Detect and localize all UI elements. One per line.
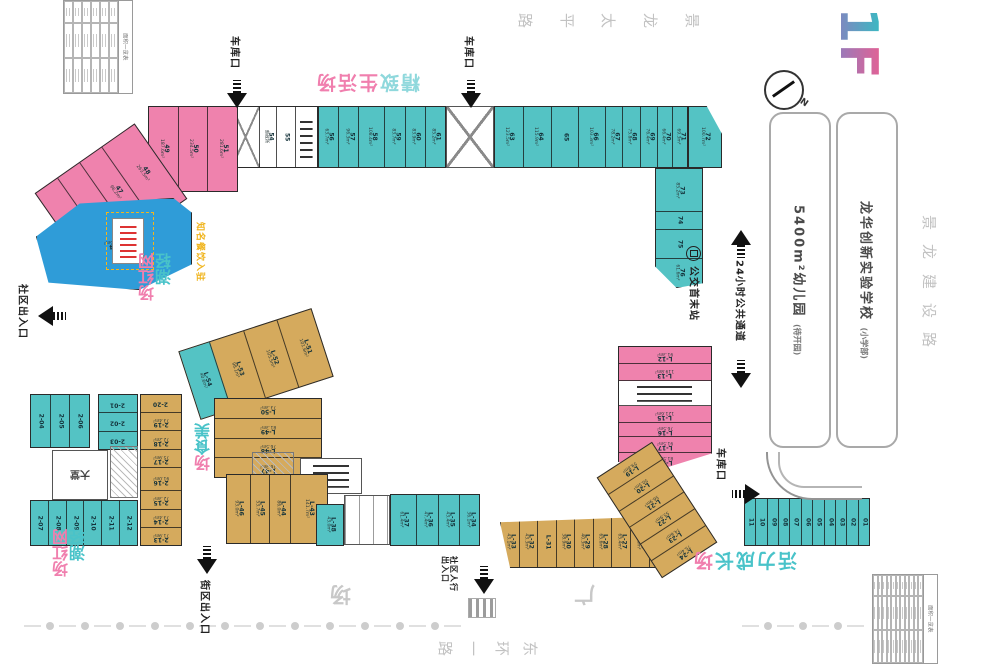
unit-label: 74 bbox=[676, 216, 682, 224]
unit-60[interactable]: 6083.9m² bbox=[406, 107, 426, 167]
unit-67[interactable]: 6778.2m² bbox=[606, 107, 623, 167]
unit-label: 4796.2m² bbox=[108, 182, 126, 202]
floor-plan-1f: 1F N 面积一览表 面积一览表 路平太龙景 景龙建设路 路一环东 广 场 54… bbox=[0, 0, 1000, 666]
road-char: 路 bbox=[435, 641, 456, 656]
unit-L-49[interactable]: L-4981.3m² bbox=[215, 419, 321, 439]
unit-label: L-5073.3m² bbox=[260, 403, 276, 414]
unit-57[interactable]: 5796.3m² bbox=[339, 107, 359, 167]
unit-label: 2-1775.9m² bbox=[153, 453, 169, 464]
cluster-unit-72: 72100.7m² bbox=[688, 106, 722, 168]
cluster-pink-L12-L18: L-1291.3m²L-13119.8m²L-15121.6m²L-1676.5… bbox=[618, 346, 712, 468]
school-block: 龙华创新实验学校 (小学部) bbox=[836, 112, 898, 448]
zone-label-segment: 活力成长 bbox=[713, 549, 797, 571]
crosswalk bbox=[468, 598, 496, 618]
unit-label: L-52105.5m² bbox=[263, 348, 279, 370]
unit-05[interactable]: 05 bbox=[813, 499, 824, 545]
unit-01[interactable]: 01 bbox=[859, 499, 869, 545]
road-dot bbox=[221, 622, 229, 630]
unit-label: 49187.6m² bbox=[158, 139, 169, 158]
unit-label: L-3843.0m² bbox=[324, 517, 335, 533]
bus-terminus-label: 公交首末站 bbox=[687, 266, 698, 321]
unit-label: L-1291.3m² bbox=[657, 350, 673, 361]
table-cell bbox=[73, 23, 82, 58]
unit-label: 09 bbox=[770, 518, 776, 526]
unit-L-35[interactable]: L-3543.4m² bbox=[439, 495, 461, 545]
zone-label-segment: 场 bbox=[692, 549, 713, 571]
road-top-jinglong-taiping: 路平太龙景 bbox=[518, 10, 700, 31]
unit-2-20[interactable]: 2-20 bbox=[141, 395, 181, 413]
table-cell bbox=[82, 58, 91, 93]
compass-icon: N bbox=[764, 70, 804, 110]
unit-label: 5983.7m² bbox=[389, 129, 400, 145]
unit-label: 2-1371.9m² bbox=[153, 531, 169, 542]
unit-label: 01 bbox=[861, 518, 867, 526]
unit-label: L-1791.5m² bbox=[657, 439, 673, 450]
road-centerline-right bbox=[742, 622, 838, 630]
cluster-tan-L43-L46: L-4693.0m²L-4553.7m²L-4486.0m²L-43141.7m… bbox=[226, 474, 328, 544]
table-cell bbox=[64, 58, 73, 93]
unit-65[interactable]: 65 bbox=[552, 107, 579, 167]
floor-logo-1f: 1F bbox=[817, 3, 899, 83]
unit-label: L-3543.4m² bbox=[443, 512, 454, 528]
unit-L-34[interactable]: L-3436.1m² bbox=[460, 495, 479, 545]
unit-2-02[interactable]: 2-02 bbox=[99, 413, 137, 431]
bus-icon bbox=[686, 246, 701, 261]
unit-2-17[interactable]: 2-1775.9m² bbox=[141, 450, 181, 468]
unit-label: 66103.3m² bbox=[587, 127, 598, 146]
unit-label: 64115.9m² bbox=[532, 127, 543, 146]
plaza-char-guang: 广 bbox=[574, 580, 595, 610]
unit-2-01[interactable]: 2-01 bbox=[99, 395, 137, 413]
unit-label: 08 bbox=[781, 518, 787, 526]
unit-label: 2-12 bbox=[125, 515, 131, 530]
unit-66[interactable]: 66103.3m² bbox=[579, 107, 606, 167]
cluster-teal-L38: L-3843.0m² bbox=[316, 504, 344, 546]
unit-label: 2-02 bbox=[110, 419, 125, 425]
cluster-teal-2-04-06: 2-042-052-06 bbox=[30, 394, 90, 448]
table-cell bbox=[109, 23, 118, 58]
unit-2-04[interactable]: 2-04 bbox=[31, 395, 51, 447]
unit-label: 10 bbox=[758, 518, 764, 526]
unit-label: L-1676.5m² bbox=[657, 424, 673, 435]
school-name: 龙华创新实验学校 bbox=[858, 201, 873, 321]
kindergarten-sub: (待开园) bbox=[793, 324, 802, 355]
road-char: 景 bbox=[682, 13, 703, 28]
road-char: 建 bbox=[919, 273, 940, 288]
stairs-block bbox=[110, 446, 138, 498]
unit-label: L-3038.9m² bbox=[560, 534, 571, 550]
unit-label: L-3343.1m² bbox=[504, 534, 515, 550]
unit-04[interactable]: 04 bbox=[825, 499, 836, 545]
road-char: 环 bbox=[492, 641, 513, 656]
road-dot bbox=[256, 622, 264, 630]
unit-61[interactable]: 6185.2m² bbox=[426, 107, 445, 167]
unit-10[interactable]: 10 bbox=[756, 499, 767, 545]
unit-2-06[interactable]: 2-06 bbox=[70, 395, 89, 447]
unit-label: 05 bbox=[815, 518, 821, 526]
unit-L-45[interactable]: L-4553.7m² bbox=[251, 475, 270, 543]
road-dot bbox=[46, 622, 54, 630]
parking-arrow-right bbox=[732, 484, 764, 504]
road-char: 平 bbox=[557, 13, 578, 28]
unit-L-12[interactable]: L-1291.3m² bbox=[619, 347, 711, 364]
unit-label: 7385.2m² bbox=[673, 182, 684, 198]
unit-label: 2-06 bbox=[77, 413, 83, 428]
unit-label: L-4486.0m² bbox=[274, 501, 285, 517]
zone-label-segment: 精致 bbox=[378, 71, 420, 93]
unit-label: 2-1572.3m² bbox=[153, 494, 169, 505]
parking-arrow-down-1 bbox=[227, 80, 247, 112]
unit-2-12[interactable]: 2-12 bbox=[120, 501, 137, 545]
unit-64[interactable]: 64115.9m² bbox=[524, 107, 553, 167]
unit-label: 63123.5m² bbox=[503, 127, 514, 146]
zone-label-vitality-growth: 活力成长场 bbox=[692, 548, 797, 575]
parking-ramp-box bbox=[446, 106, 494, 168]
unit-07[interactable]: 07 bbox=[790, 499, 801, 545]
white-units-block bbox=[344, 495, 390, 545]
parking-entrance-label-3: 车库口 bbox=[714, 448, 725, 481]
road-bottom-donghuan-first: 路一环东 bbox=[438, 638, 538, 659]
road-right-jinglong-jianshe: 景龙建设路 bbox=[922, 212, 937, 350]
unit-68[interactable]: 6875.8m² bbox=[623, 107, 641, 167]
passage-arrow-up bbox=[731, 226, 751, 258]
unit-label: L-51101.6m² bbox=[297, 337, 313, 359]
cluster-teal-L34-L37: L-3761.4m²L-3647.4m²L-3543.4m²L-3436.1m² bbox=[390, 494, 480, 546]
table-cell bbox=[109, 1, 118, 23]
zone-label-char: 网 bbox=[138, 252, 154, 268]
unit-L-36[interactable]: L-3647.4m² bbox=[417, 495, 439, 545]
parking-arrow-down-2 bbox=[461, 80, 481, 112]
unit-63[interactable]: 63123.5m² bbox=[495, 107, 524, 167]
unit-label: 6875.8m² bbox=[626, 129, 637, 145]
unit-label: 2-1872.2m² bbox=[153, 435, 169, 446]
passage-arrow-down bbox=[731, 360, 751, 392]
road-char: 一 bbox=[463, 641, 484, 656]
kindergarten-name: 5400m²幼儿园 bbox=[791, 205, 806, 317]
unit-L-29[interactable]: L-2940.3m² bbox=[575, 517, 594, 567]
table-cell bbox=[82, 1, 91, 23]
unit-2-07[interactable]: 2-07 bbox=[31, 501, 49, 545]
unit-label: 04 bbox=[827, 518, 833, 526]
unit-label: 06 bbox=[804, 518, 810, 526]
unit-L-46[interactable]: L-4693.0m² bbox=[227, 475, 251, 543]
unit-70[interactable]: 7066.4m² bbox=[658, 107, 673, 167]
unit-label: L-2865.6m² bbox=[597, 534, 608, 550]
road-char: 东 bbox=[520, 641, 541, 656]
table-cell bbox=[918, 596, 923, 629]
zone-label-char: 网 bbox=[52, 528, 68, 544]
unit-L-17[interactable]: L-1791.5m² bbox=[619, 437, 711, 452]
unit-label: 72100.7m² bbox=[699, 127, 710, 146]
unit-label: 65 bbox=[562, 133, 568, 141]
unit-label: 11 bbox=[747, 518, 753, 526]
zone-label-trendy-online-top: 轻潮网红场 bbox=[138, 252, 171, 300]
road-dot bbox=[431, 622, 439, 630]
unit-09[interactable]: 09 bbox=[768, 499, 779, 545]
compass-needle bbox=[772, 80, 795, 97]
unit-08[interactable]: 08 bbox=[779, 499, 790, 545]
unit-label: 58108.4m² bbox=[366, 127, 377, 146]
unit-label: L-3436.1m² bbox=[464, 512, 475, 528]
unit-label: 03 bbox=[838, 518, 844, 526]
zone-label-char: 潮 bbox=[69, 544, 85, 560]
unit-11[interactable]: 11 bbox=[745, 499, 756, 545]
table-cell bbox=[73, 58, 82, 93]
pedestrian-exit-arrow-down bbox=[474, 566, 494, 598]
school-sub: (小学部) bbox=[860, 328, 869, 359]
table-cell bbox=[100, 1, 109, 23]
road-dot bbox=[396, 622, 404, 630]
unit-L-28[interactable]: L-2865.6m² bbox=[594, 517, 613, 567]
kindergarten-block: 5400m²幼儿园 (待开园) bbox=[769, 112, 831, 448]
road-dot bbox=[361, 622, 369, 630]
table-title: 面积一览表 bbox=[122, 33, 130, 61]
table-cell bbox=[73, 1, 82, 23]
unit-54[interactable]: 54邮政所 bbox=[260, 107, 277, 167]
table-cell bbox=[64, 23, 73, 58]
table-cell bbox=[64, 1, 73, 23]
zone-label-char: 轻 bbox=[69, 528, 85, 544]
logo-1: 1 bbox=[832, 7, 884, 43]
zone-label-char: 轻 bbox=[155, 252, 171, 268]
unit-L-33[interactable]: L-3343.1m² bbox=[501, 517, 520, 567]
road-char: 景 bbox=[919, 215, 940, 230]
parking-entrance-label-1: 车库口 bbox=[228, 36, 239, 69]
lobby-label: 大堂 bbox=[70, 468, 90, 483]
unit-label: L-2475.4m² bbox=[674, 543, 694, 561]
unit-label: 2-04 bbox=[37, 413, 43, 428]
zone-label-char: 场 bbox=[138, 284, 154, 300]
unit-label: L-5398.1m² bbox=[230, 361, 245, 380]
passage-24h-label: 24小时公共通道 bbox=[733, 260, 744, 342]
unit-label: L-3243.3m² bbox=[523, 534, 534, 550]
unit-label: 5796.3m² bbox=[343, 129, 354, 145]
unit-55[interactable]: 55 bbox=[277, 107, 296, 167]
restaurant-note-label: 知名餐饮入驻 bbox=[194, 222, 203, 282]
unit-label: L-2940.3m² bbox=[579, 534, 590, 550]
zone-label-char: 场 bbox=[52, 560, 68, 576]
unit-label: 54邮政所 bbox=[263, 130, 274, 144]
unit-label: 7169.3m² bbox=[675, 129, 686, 145]
unit-69[interactable]: 6976.4m² bbox=[641, 107, 659, 167]
unit-label: 2-1973.4m² bbox=[153, 416, 169, 427]
table-cell bbox=[91, 23, 100, 58]
road-char: 龙 bbox=[919, 244, 940, 259]
unit-73[interactable]: 7385.2m² bbox=[656, 169, 702, 212]
pedestrian-exit-label: 社区人行出入口 bbox=[440, 556, 457, 616]
unit-59[interactable]: 5983.7m² bbox=[385, 107, 405, 167]
zone-label-char: 红 bbox=[52, 544, 68, 560]
service-unit bbox=[296, 107, 317, 167]
road-char: 路 bbox=[919, 332, 940, 347]
bus-glyph bbox=[690, 250, 698, 257]
unit-label: L-3647.4m² bbox=[422, 512, 433, 528]
unit-L-50[interactable]: L-5073.3m² bbox=[215, 399, 321, 419]
unit-label: 55 bbox=[283, 133, 289, 141]
unit-label: 7661.6m² bbox=[673, 265, 684, 281]
table-cell bbox=[918, 630, 923, 663]
community-exit-arrow-left bbox=[34, 306, 66, 326]
area-table-bottom-right: 面积一览表 bbox=[872, 574, 938, 664]
unit-L-31[interactable]: L-31 bbox=[538, 517, 557, 567]
area-table-top-left: 面积一览表 bbox=[63, 0, 133, 94]
road-dot bbox=[151, 622, 159, 630]
table-cell bbox=[100, 23, 109, 58]
cluster-tan-2-13-20: 2-202-1973.4m²2-1872.2m²2-1775.9m²2-1691… bbox=[140, 394, 182, 546]
unit-label: L-2156.9m² bbox=[642, 493, 662, 511]
zone-label-trendy-online-bottom: 轻潮网红场 bbox=[52, 528, 85, 576]
table-cell bbox=[918, 575, 923, 596]
unit-2-14[interactable]: 2-1473.4m² bbox=[141, 510, 181, 528]
unit-L-38[interactable]: L-3843.0m² bbox=[317, 505, 343, 545]
unit-50[interactable]: 50234.5m² bbox=[179, 107, 209, 191]
road-char: 设 bbox=[919, 303, 940, 318]
unit-label: 02 bbox=[849, 518, 855, 526]
road-dot bbox=[116, 622, 124, 630]
unit-label: 2-1473.4m² bbox=[153, 513, 169, 524]
unit-51[interactable]: 51281.6m² bbox=[208, 107, 237, 191]
unit-label: 6778.2m² bbox=[609, 129, 620, 145]
unit-label: 2-03 bbox=[110, 437, 125, 443]
unit-label: 6976.4m² bbox=[643, 129, 654, 145]
zone-label-char: 美 bbox=[194, 422, 210, 438]
unit-2-13[interactable]: 2-1371.9m² bbox=[141, 528, 181, 545]
parking-entrance-label-2: 车库口 bbox=[462, 36, 473, 69]
unit-2-18[interactable]: 2-1872.2m² bbox=[141, 431, 181, 449]
road-centerline-left bbox=[24, 622, 448, 630]
unit-label: 51281.6m² bbox=[217, 139, 228, 158]
unit-label: 7066.4m² bbox=[660, 129, 671, 145]
unit-label: 2-11 bbox=[108, 515, 114, 530]
unit-2-16[interactable]: 2-1691.0m² bbox=[141, 468, 181, 491]
unit-label: 2-01 bbox=[110, 401, 125, 407]
zone-label-char: 潮 bbox=[155, 268, 171, 284]
unit-L-32[interactable]: L-3243.3m² bbox=[520, 517, 539, 567]
unit-label: 2-05 bbox=[57, 413, 63, 428]
unit-label: L-15121.6m² bbox=[655, 409, 674, 420]
unit-L-30[interactable]: L-3038.9m² bbox=[557, 517, 576, 567]
unit-label: 75 bbox=[676, 240, 682, 248]
road-dot bbox=[764, 622, 772, 630]
unit-label: 5663.7m² bbox=[323, 129, 334, 145]
unit-L-13[interactable]: L-13119.8m² bbox=[619, 364, 711, 381]
unit-71[interactable]: 7169.3m² bbox=[673, 107, 687, 167]
cluster-top-teal-63-71: 63123.5m²64115.9m²6566103.3m²6778.2m²687… bbox=[494, 106, 688, 168]
unit-2-19[interactable]: 2-1973.4m² bbox=[141, 413, 181, 431]
service-unit bbox=[619, 381, 711, 406]
unit-label: L-2050.5m² bbox=[631, 476, 651, 494]
unit-L-44[interactable]: L-4486.0m² bbox=[270, 475, 291, 543]
road-char: 路 bbox=[515, 13, 536, 28]
unit-label: L-43141.7m² bbox=[303, 499, 314, 518]
unit-label: 2-10 bbox=[90, 515, 96, 530]
unit-03[interactable]: 03 bbox=[836, 499, 847, 545]
zone-label-segment: 生活场 bbox=[315, 71, 378, 93]
cluster-top-teal-56-61: 5663.7m²5796.3m²58108.4m²5983.7m²6083.9m… bbox=[318, 106, 446, 168]
unit-label: 07 bbox=[792, 518, 798, 526]
unit-56[interactable]: 5663.7m² bbox=[319, 107, 339, 167]
unit-label: 2-07 bbox=[36, 515, 42, 530]
unit-label: L-4693.0m² bbox=[233, 501, 244, 517]
unit-label: 6185.2m² bbox=[430, 129, 441, 145]
table-cell bbox=[100, 58, 109, 93]
street-exit-label: 街区出入口 bbox=[198, 580, 209, 635]
unit-label: L-4981.3m² bbox=[260, 423, 276, 434]
unit-06[interactable]: 06 bbox=[802, 499, 813, 545]
unit-2-05[interactable]: 2-05 bbox=[51, 395, 71, 447]
unit-58[interactable]: 58108.4m² bbox=[359, 107, 385, 167]
unit-label: 2-20 bbox=[153, 400, 168, 406]
compass-north-label: N bbox=[798, 97, 810, 110]
unit-label: L-13119.8m² bbox=[655, 367, 674, 378]
unit-72[interactable]: 72100.7m² bbox=[689, 107, 721, 167]
logo-f: F bbox=[832, 43, 884, 79]
unit-2-15[interactable]: 2-1572.3m² bbox=[141, 491, 181, 509]
cluster-teal-01-11: 1110090807060504030201 bbox=[744, 498, 870, 546]
zone-label-char: 红 bbox=[138, 268, 154, 284]
unit-label: L-4553.7m² bbox=[254, 501, 265, 517]
road-dot bbox=[291, 622, 299, 630]
unit-74[interactable]: 74 bbox=[656, 212, 702, 230]
unit-L-15[interactable]: L-15121.6m² bbox=[619, 406, 711, 423]
road-dot bbox=[799, 622, 807, 630]
table-cell bbox=[91, 58, 100, 93]
unit-label: 6083.9m² bbox=[410, 129, 421, 145]
road-dot bbox=[834, 622, 842, 630]
unit-02[interactable]: 02 bbox=[847, 499, 858, 545]
lobby-block: 大堂 bbox=[52, 450, 108, 500]
unit-L-37[interactable]: L-3761.4m² bbox=[391, 495, 417, 545]
road-dot bbox=[326, 622, 334, 630]
zone-label-char: 场 bbox=[194, 454, 210, 470]
unit-label: 2-1691.0m² bbox=[153, 474, 169, 485]
community-exit-label: 社区出入口 bbox=[16, 284, 27, 339]
unit-label: L-2765.4m² bbox=[616, 534, 627, 550]
zone-label-char: 食 bbox=[194, 438, 210, 454]
unit-label: L-31 bbox=[544, 535, 550, 550]
unit-2-11[interactable]: 2-11 bbox=[102, 501, 120, 545]
unit-label: L-3761.4m² bbox=[398, 512, 409, 528]
road-dot bbox=[81, 622, 89, 630]
zone-label-food-court: 美食场 bbox=[194, 422, 210, 470]
unit-label: 48263.5m² bbox=[134, 162, 154, 184]
unit-label: 50234.5m² bbox=[188, 139, 199, 158]
table-cell bbox=[91, 1, 100, 23]
table-cell bbox=[82, 23, 91, 58]
street-exit-arrow-down bbox=[197, 546, 217, 578]
unit-L-16[interactable]: L-1676.5m² bbox=[619, 423, 711, 437]
table-title: 面积一览表 bbox=[927, 605, 935, 633]
garage-ramp-duct bbox=[766, 452, 862, 500]
unit-2-10[interactable]: 2-10 bbox=[84, 501, 102, 545]
road-char: 龙 bbox=[640, 13, 661, 28]
zone-label-refined-living: 精致生活场 bbox=[315, 70, 420, 97]
table-cell bbox=[109, 58, 118, 93]
plaza-char-chang: 场 bbox=[330, 580, 351, 610]
cluster-teal-2-01-03: 2-012-022-03 bbox=[98, 394, 138, 450]
road-dot bbox=[186, 622, 194, 630]
unit-label: L-5440.6m² bbox=[197, 371, 212, 390]
road-char: 太 bbox=[598, 13, 619, 28]
